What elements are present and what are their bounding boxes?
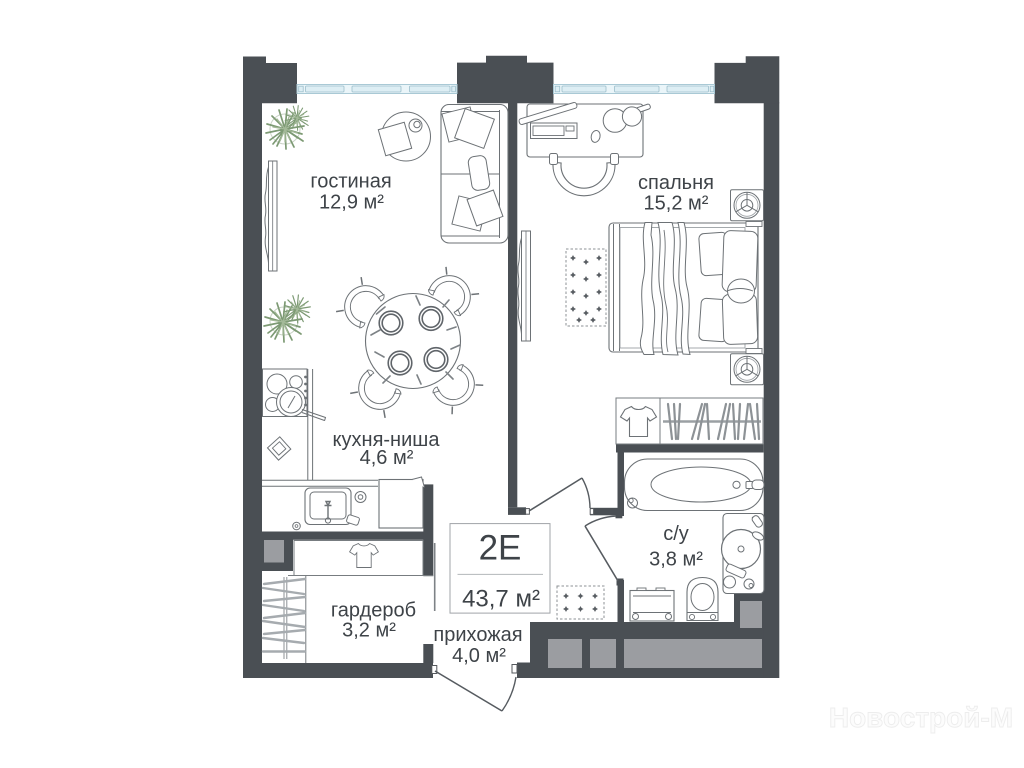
svg-text:12,9 м²: 12,9 м²	[319, 192, 384, 214]
svg-text:2Е: 2Е	[479, 529, 522, 568]
svg-text:3,8 м²: 3,8 м²	[649, 549, 703, 571]
svg-text:с/у: с/у	[663, 523, 689, 545]
svg-text:4,6 м²: 4,6 м²	[360, 447, 414, 469]
svg-text:43,7 м²: 43,7 м²	[462, 586, 540, 613]
svg-text:гардероб: гардероб	[331, 600, 416, 622]
svg-text:прихожая: прихожая	[433, 624, 522, 646]
svg-text:3,2 м²: 3,2 м²	[342, 620, 396, 642]
svg-text:гостиная: гостиная	[310, 171, 391, 193]
svg-text:спальня: спальня	[638, 172, 714, 194]
svg-text:4,0 м²: 4,0 м²	[452, 645, 506, 667]
svg-text:Новострой-М: Новострой-М	[829, 702, 1013, 733]
svg-text:15,2 м²: 15,2 м²	[644, 193, 709, 215]
